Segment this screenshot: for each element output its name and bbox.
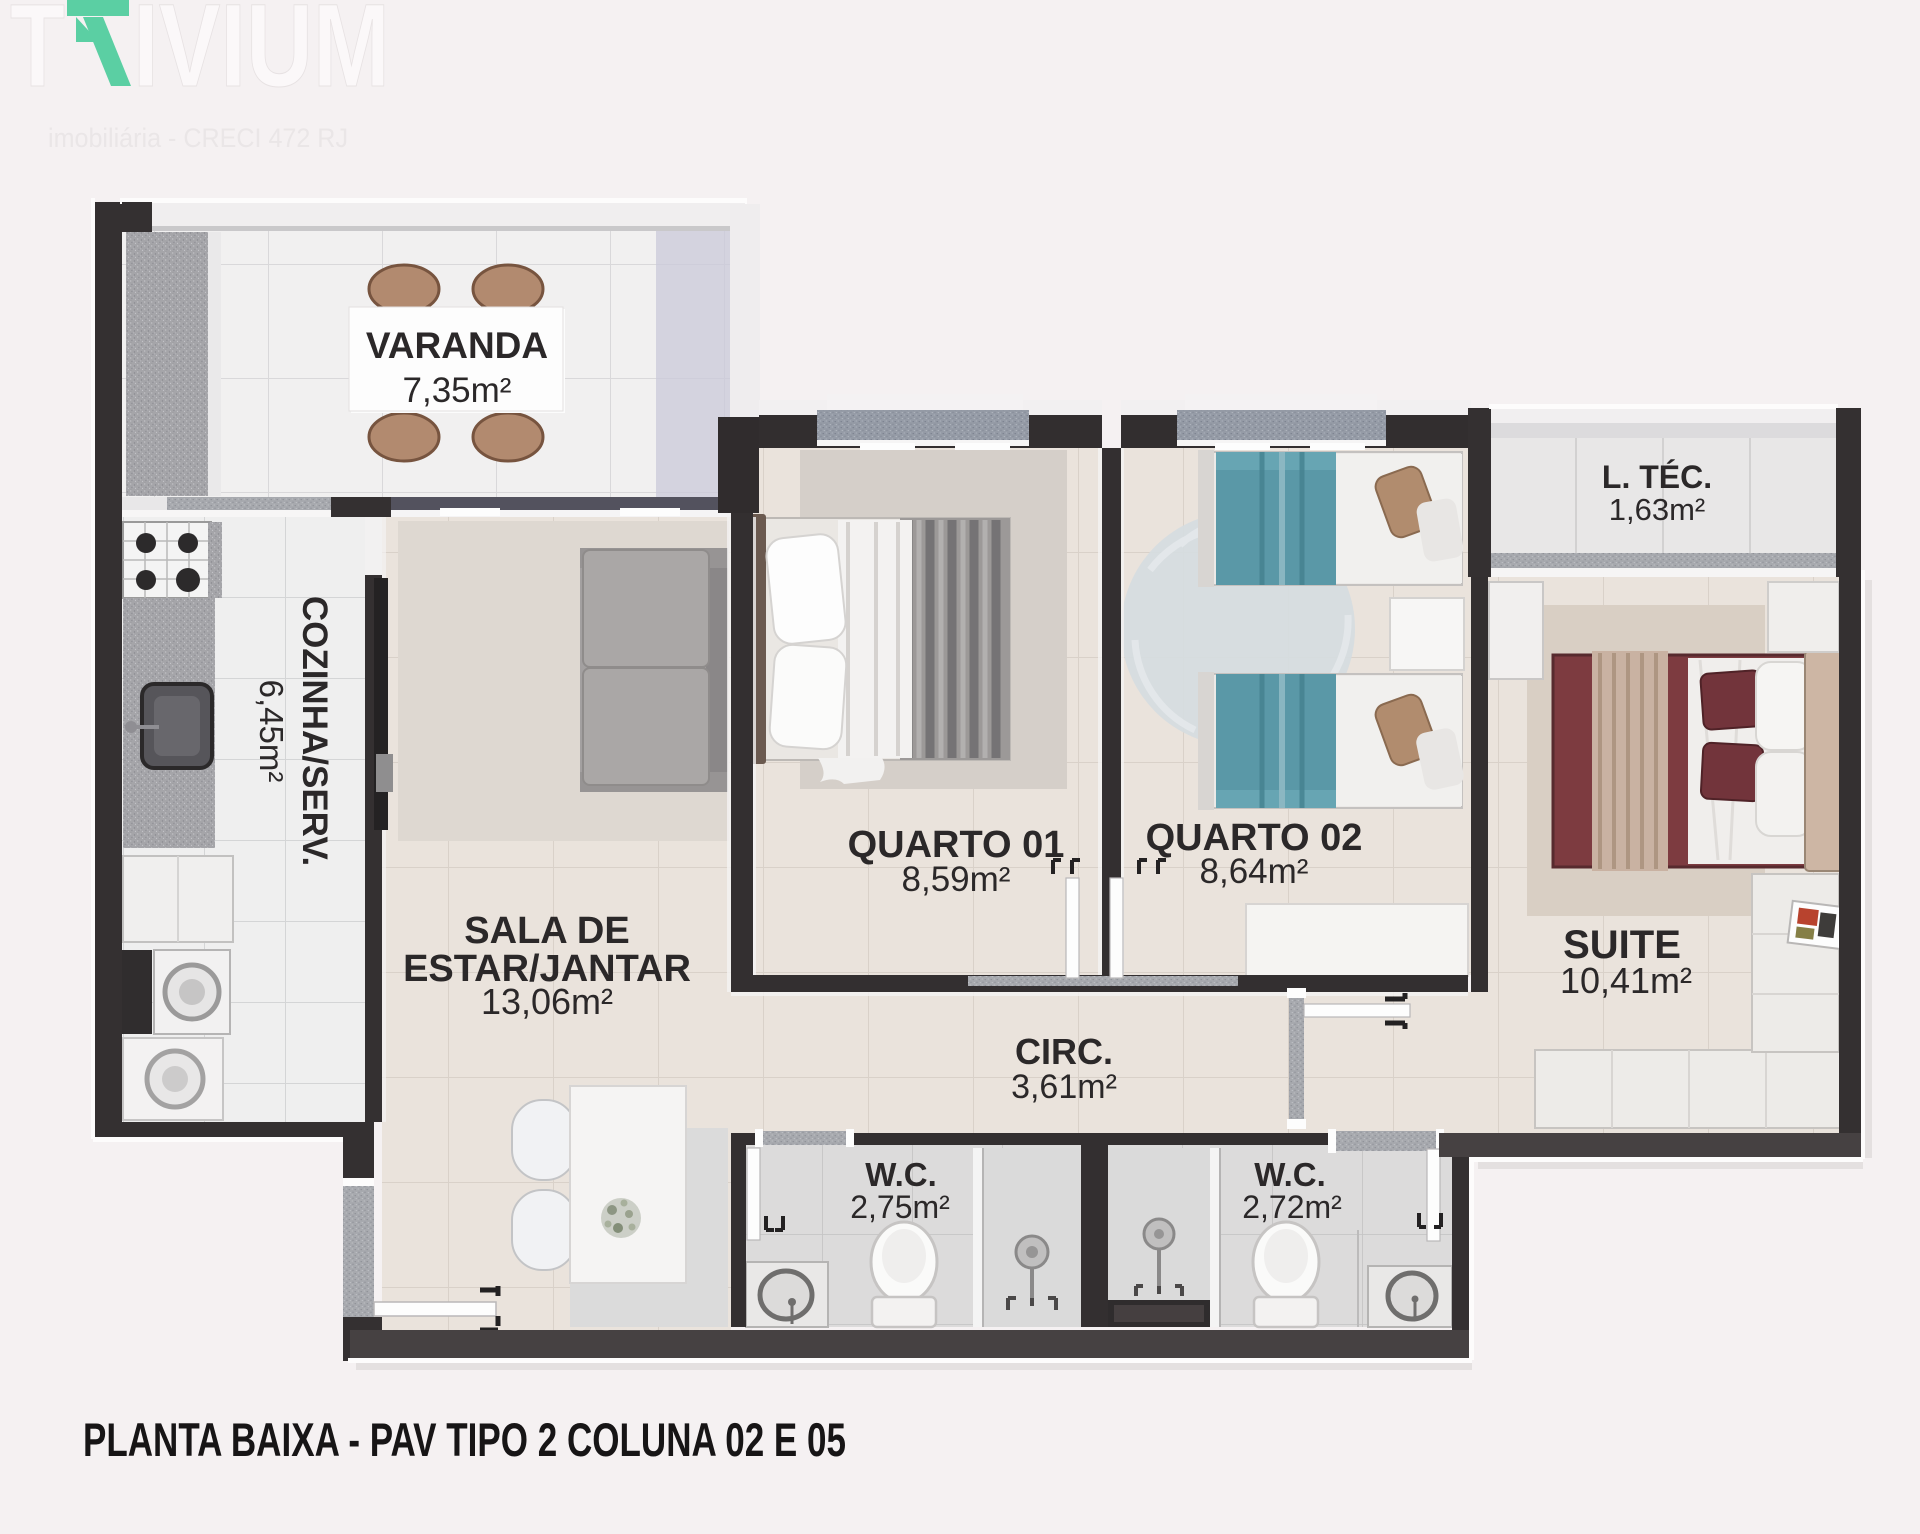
svg-text:IVIUM: IVIUM xyxy=(133,0,390,112)
svg-text:10,41m²: 10,41m² xyxy=(1560,960,1692,1001)
svg-text:T: T xyxy=(10,0,65,112)
svg-text:VARANDA: VARANDA xyxy=(366,325,548,366)
svg-text:13,06m²: 13,06m² xyxy=(481,981,613,1022)
svg-text:8,64m²: 8,64m² xyxy=(1200,852,1309,891)
svg-text:COZINHA/SERV.: COZINHA/SERV. xyxy=(295,596,334,866)
svg-text:CIRC.: CIRC. xyxy=(1015,1031,1113,1072)
svg-text:2,75m²: 2,75m² xyxy=(850,1189,950,1225)
svg-text:L. TÉC.: L. TÉC. xyxy=(1602,459,1712,495)
svg-text:PLANTA BAIXA - PAV TIPO 2 COLU: PLANTA BAIXA - PAV TIPO 2 COLUNA 02 E 05 xyxy=(83,1413,846,1466)
svg-text:7,35m²: 7,35m² xyxy=(403,371,512,410)
svg-text:8,59m²: 8,59m² xyxy=(902,860,1011,899)
svg-text:6,45m²: 6,45m² xyxy=(253,680,290,783)
svg-text:2,72m²: 2,72m² xyxy=(1242,1189,1342,1225)
svg-text:1,63m²: 1,63m² xyxy=(1609,492,1705,527)
svg-text:3,61m²: 3,61m² xyxy=(1011,1068,1117,1106)
svg-text:SALA DE: SALA DE xyxy=(464,910,629,952)
svg-text:W.C.: W.C. xyxy=(1254,1156,1326,1193)
svg-text:imobiliária - CRECI 472 RJ: imobiliária - CRECI 472 RJ xyxy=(48,123,348,153)
svg-text:W.C.: W.C. xyxy=(865,1156,937,1193)
